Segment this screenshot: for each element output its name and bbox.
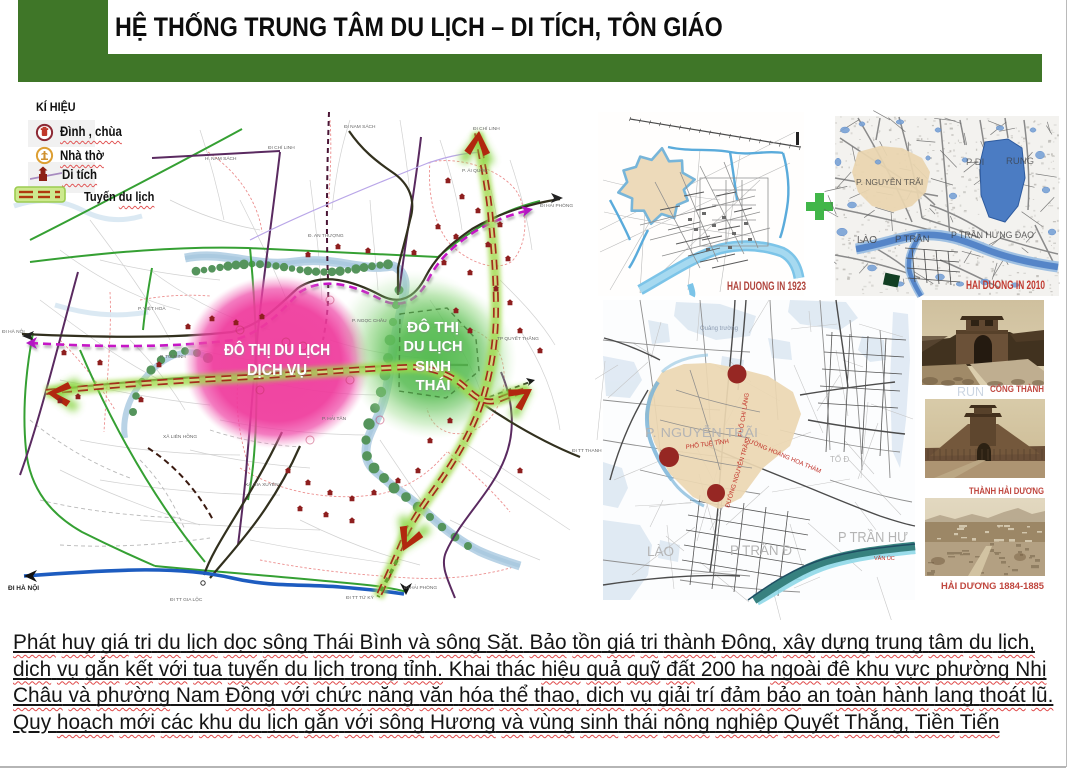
svg-text:DU LỊCH: DU LỊCH [404, 339, 463, 355]
svg-text:ĐI HẢI PHÒNG: ĐI HẢI PHÒNG [540, 202, 573, 209]
svg-text:XÃ LIÊN HỒNG: XÃ LIÊN HỒNG [163, 432, 197, 440]
svg-text:LÀO: LÀO [647, 544, 674, 559]
svg-text:THÀNH HẢI DƯƠNG: THÀNH HẢI DƯƠNG [969, 485, 1044, 497]
svg-text:ĐI TT GIA LỘC: ĐI TT GIA LỘC [170, 596, 203, 603]
svg-text:P TRẦN HƯ: P TRẦN HƯ [838, 529, 908, 546]
svg-text:P. NGUYỄN TRÃI: P. NGUYỄN TRÃI [856, 176, 923, 187]
svg-text:RUNG: RUNG [1006, 156, 1034, 167]
svg-text:P TRẦN HƯNG ĐẠO: P TRẦN HƯNG ĐẠO [951, 230, 1034, 240]
svg-text:HAI DUONG IN 2010: HAI DUONG IN 2010 [966, 280, 1045, 292]
svg-text:VĂN ÚC: VĂN ÚC [874, 555, 895, 562]
svg-text:TỔ Đ: TỔ Đ [830, 455, 849, 464]
svg-text:ĐI TT TỨ KỲ: ĐI TT TỨ KỲ [346, 594, 375, 601]
svg-text:ĐI NAM SÁCH: ĐI NAM SÁCH [344, 123, 376, 130]
svg-text:P ĐI: P ĐI [966, 157, 984, 168]
svg-text:HẢI DƯƠNG 1884-1885: HẢI DƯƠNG 1884-1885 [941, 580, 1045, 592]
svg-text:ĐÔ THỊ DU LỊCH: ĐÔ THỊ DU LỊCH [224, 340, 330, 359]
svg-text:ĐI HÀ NỘI: ĐI HÀ NỘI [8, 583, 39, 592]
svg-text:P. TỨ MINH: P. TỨ MINH [160, 353, 186, 360]
svg-text:ĐÔ THỊ: ĐÔ THỊ [407, 318, 459, 336]
svg-text:Đ. AN THƯỢNG: Đ. AN THƯỢNG [308, 233, 344, 239]
svg-text:ĐI HÀ NỘI: ĐI HÀ NỘI [2, 328, 25, 335]
svg-text:XÃ GIA XUYÊN: XÃ GIA XUYÊN [245, 480, 279, 488]
svg-text:P TRẦN: P TRẦN [895, 234, 930, 245]
svg-text:H. NAM SÁCH: H. NAM SÁCH [205, 155, 237, 162]
svg-text:P. NGỌC CHÂU: P. NGỌC CHÂU [352, 317, 387, 324]
svg-text:CỔNG THÀNH: CỔNG THÀNH [990, 383, 1044, 395]
svg-text:HAI DUONG IN 1923: HAI DUONG IN 1923 [727, 281, 806, 293]
svg-text:SINH: SINH [415, 359, 451, 375]
svg-text:P. NGUYỄN TRÃI: P. NGUYỄN TRÃI [645, 425, 758, 440]
svg-text:P TRẦN Đ: P TRẦN Đ [730, 543, 792, 558]
svg-text:Quảng trường: Quảng trường [700, 326, 738, 332]
svg-text:P. ÁI QUỐC: P. ÁI QUỐC [462, 167, 488, 174]
svg-text:ĐI HẢI PHÒNG: ĐI HẢI PHÒNG [404, 584, 437, 591]
svg-text:ĐI CHÍ LINH: ĐI CHÍ LINH [268, 144, 295, 151]
svg-text:LÀO: LÀO [857, 233, 877, 246]
svg-text:DỊCH VỤ: DỊCH VỤ [247, 362, 307, 379]
svg-text:P. HẢI TÂN: P. HẢI TÂN [322, 415, 347, 422]
svg-text:RUN: RUN [957, 385, 984, 399]
svg-text:THÁI: THÁI [416, 377, 451, 394]
svg-text:ĐI CHÍ LINH: ĐI CHÍ LINH [473, 125, 500, 132]
